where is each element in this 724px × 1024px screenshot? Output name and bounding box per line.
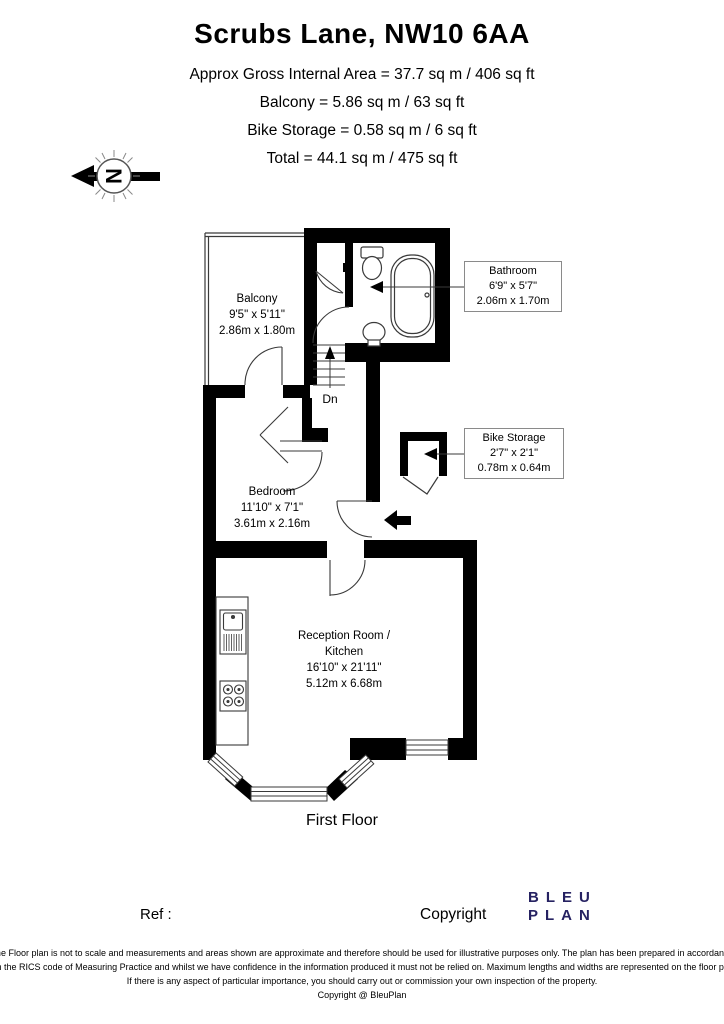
bike-storage-door — [403, 477, 438, 494]
page-title: Scrubs Lane, NW10 6AA — [194, 18, 530, 50]
stairs-down-label: Dn — [322, 392, 337, 406]
disclaimer-line-2: with the RICS code of Measuring Practice… — [0, 960, 724, 974]
bike-area-line: Bike Storage = 0.58 sq m / 6 sq ft — [247, 122, 477, 140]
sink-bowl — [363, 323, 385, 342]
bathtub-tap — [425, 293, 429, 297]
sink-base — [368, 340, 380, 346]
reception-right-window — [406, 740, 448, 755]
bay-window-left — [208, 753, 243, 786]
compass-n-label: N — [102, 168, 127, 184]
entrance-arrow-icon — [384, 510, 411, 530]
toilet-bowl — [363, 257, 382, 280]
balcony-label: Balcony 9'5" x 5'11" 2.86m x 1.80m — [219, 291, 295, 339]
disclaimer-line-4: Copyright @ BleuPlan — [318, 988, 407, 1002]
north-arrow-icon: N — [71, 150, 160, 202]
bleuplan-logo: BLEU PLAN — [528, 889, 597, 925]
floorplan-page: N — [0, 0, 724, 1024]
kitchen-tap — [232, 616, 235, 619]
copyright-label: Copyright — [420, 906, 486, 924]
floor-name-label: First Floor — [306, 812, 378, 830]
reception-label: Reception Room / Kitchen 16'10" x 21'11"… — [298, 628, 390, 692]
total-area-line: Total = 44.1 sq m / 475 sq ft — [267, 150, 458, 168]
kitchen-hob — [220, 681, 246, 711]
bike-storage-callout: Bike Storage 2'7" x 2'1" 0.78m x 0.64m — [464, 428, 564, 479]
bathroom-fixtures — [361, 247, 434, 346]
balcony-area-line: Balcony = 5.86 sq m / 63 sq ft — [260, 94, 465, 112]
disclaimer-line-1: The Floor plan is not to scale and measu… — [0, 946, 724, 960]
bathroom-callout: Bathroom 6'9" x 5'7" 2.06m x 1.70m — [464, 261, 562, 312]
ref-label: Ref : — [140, 906, 172, 923]
bay-window-center — [251, 787, 327, 801]
gross-area-line: Approx Gross Internal Area = 37.7 sq m /… — [189, 66, 534, 84]
kitchen-fixtures — [216, 597, 248, 745]
bike-leader-arrowhead — [424, 448, 437, 460]
bedroom-label: Bedroom 11'10" x 7'1" 3.61m x 2.16m — [234, 484, 310, 532]
disclaimer-line-3: If there is any aspect of particular imp… — [127, 974, 598, 988]
bathroom-leader-arrowhead — [370, 281, 383, 293]
